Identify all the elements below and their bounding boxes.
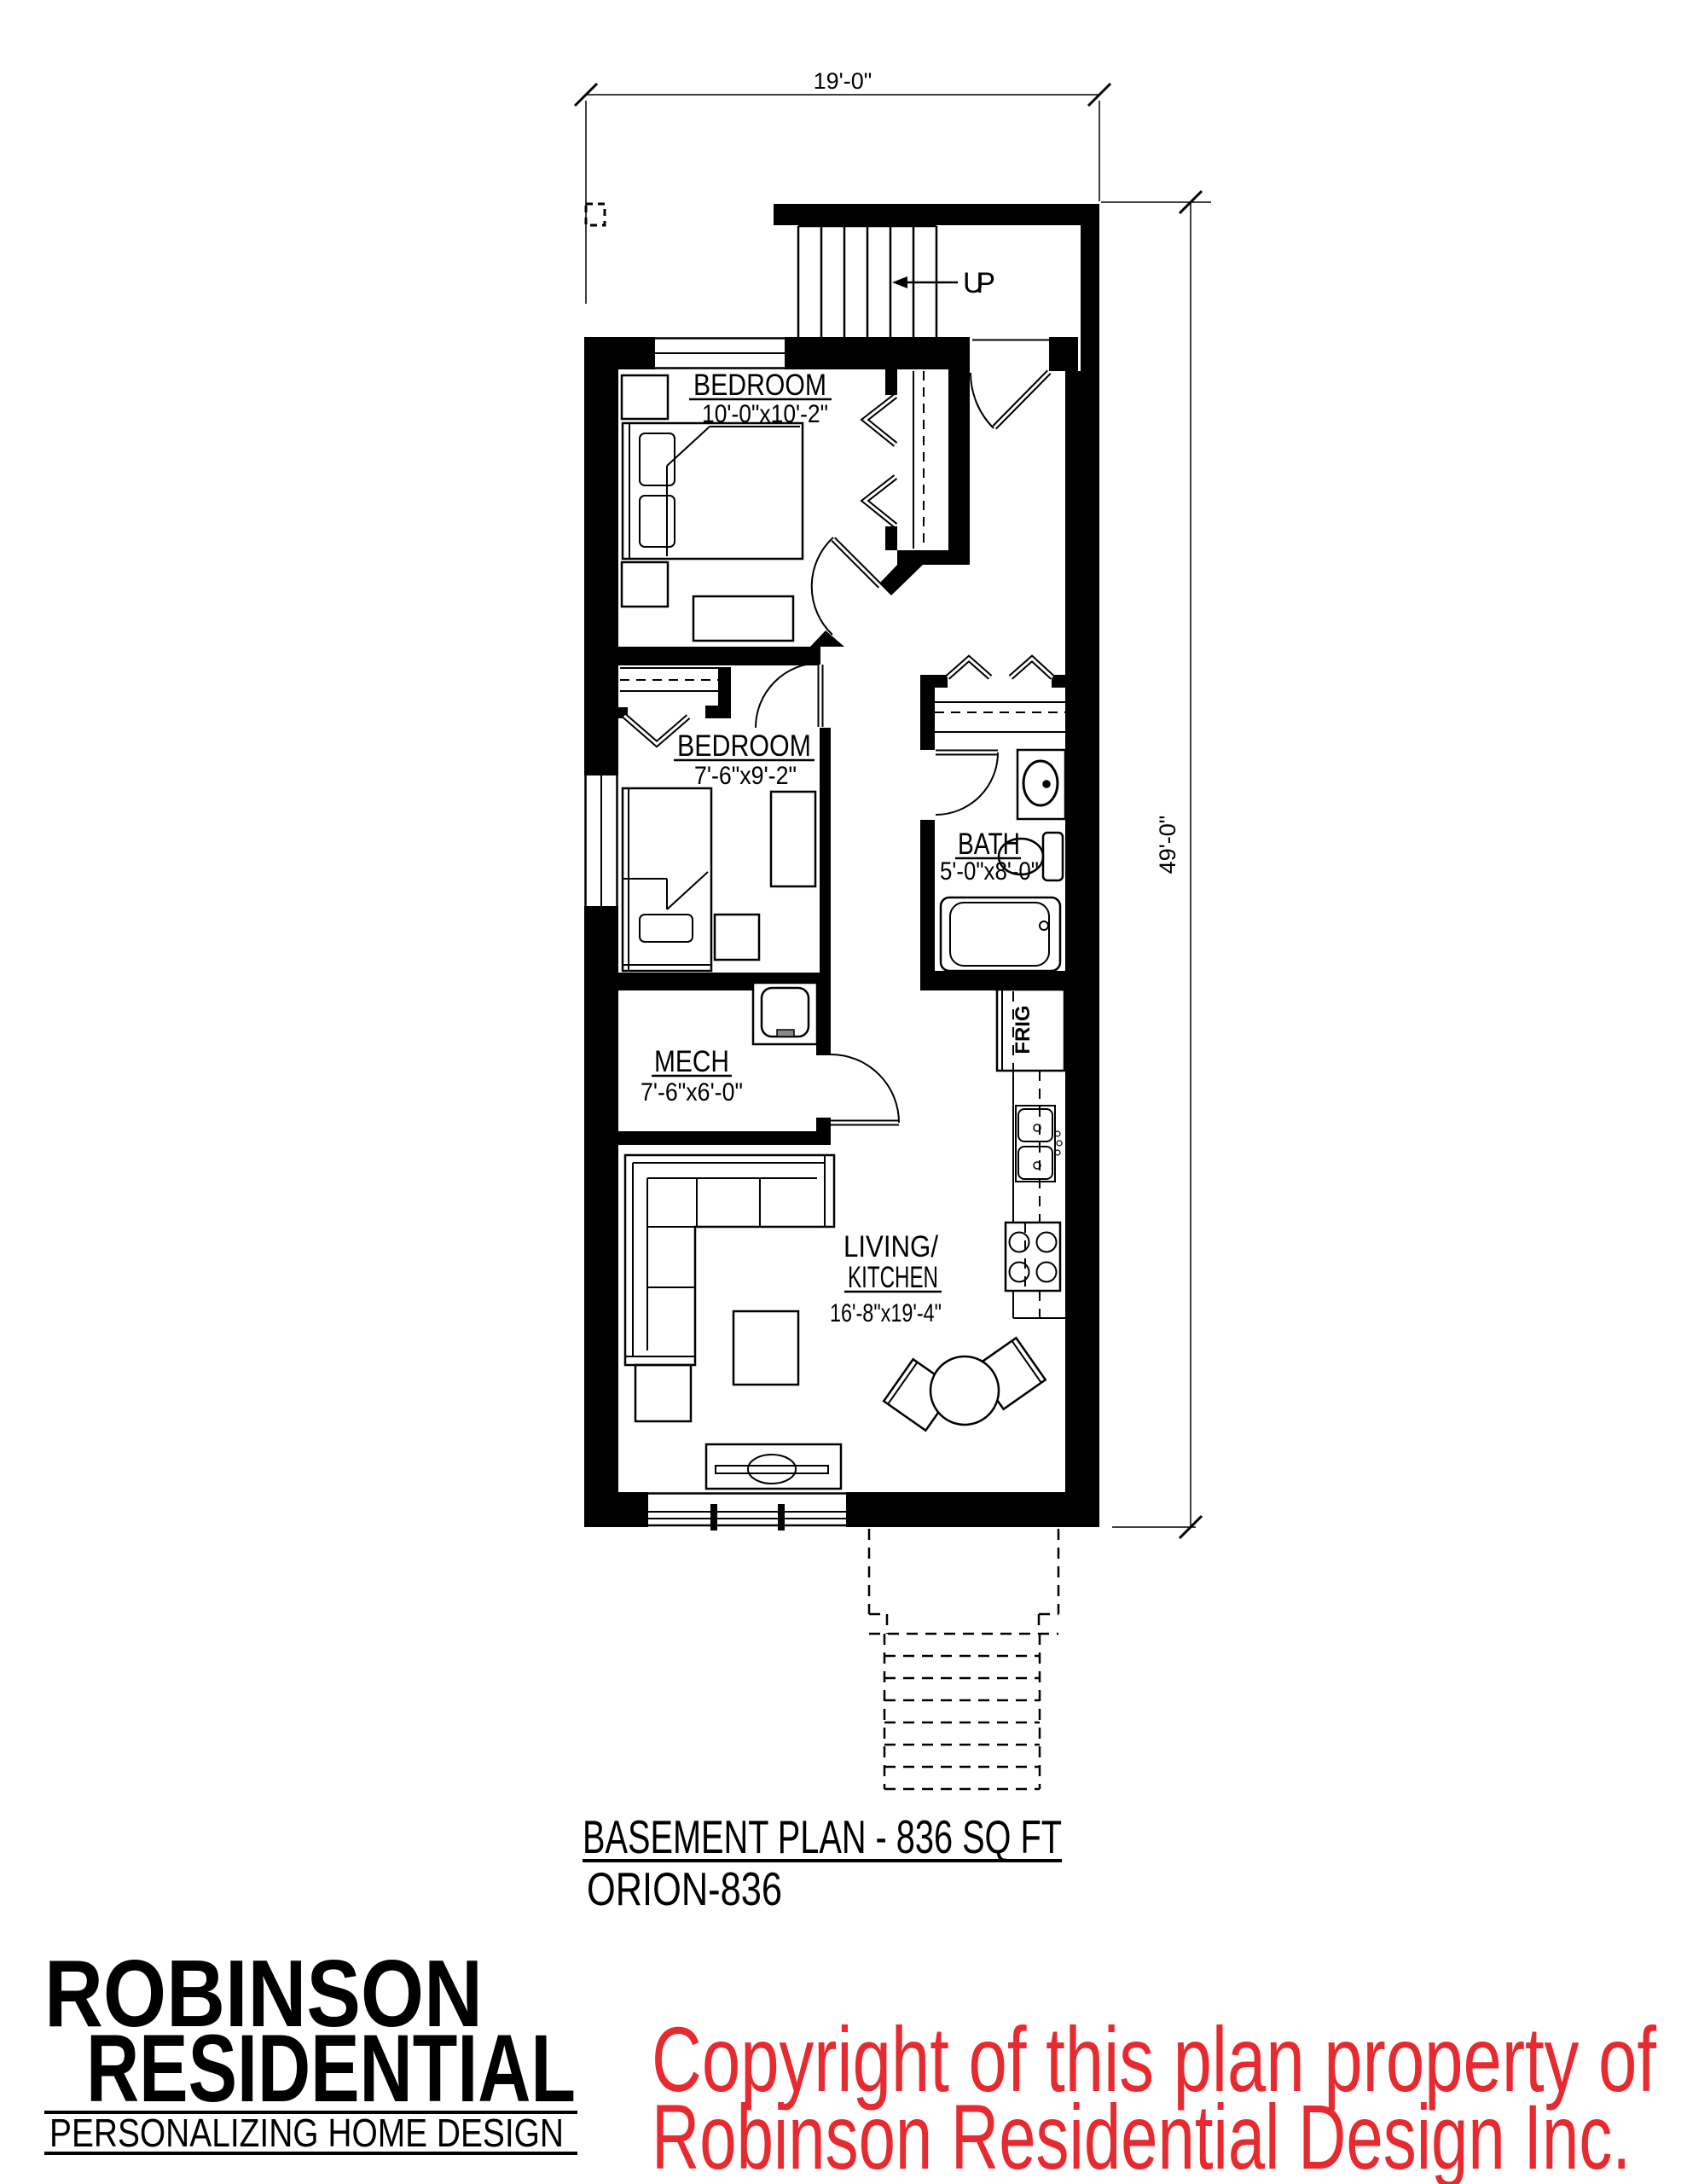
svg-text:KITCHEN: KITCHEN [848,1261,938,1294]
svg-text:BEDROOM: BEDROOM [677,729,811,763]
svg-text:5'-0"x8'-0": 5'-0"x8'-0" [940,857,1039,886]
svg-text:7'-6"x9'-2": 7'-6"x9'-2" [694,762,797,790]
svg-text:19'-0": 19'-0" [814,68,872,94]
svg-text:BATH: BATH [958,828,1020,861]
svg-text:UP: UP [963,267,995,299]
svg-text:PERSONALIZING HOME DESIGN: PERSONALIZING HOME DESIGN [49,2111,564,2155]
svg-text:FRIG: FRIG [1012,1005,1035,1054]
svg-text:ORION-836: ORION-836 [587,1862,782,1915]
svg-text:BEDROOM: BEDROOM [693,369,826,402]
svg-text:LIVING/: LIVING/ [843,1230,938,1263]
svg-text:RESIDENTIAL: RESIDENTIAL [86,2015,576,2122]
svg-text:16'-8"x19'-4": 16'-8"x19'-4" [830,1299,942,1327]
svg-text:Robinson Residential Design In: Robinson Residential Design Inc. [652,2085,1631,2184]
svg-text:49'-0": 49'-0" [1155,816,1180,874]
svg-text:7'-6"x6'-0": 7'-6"x6'-0" [641,1078,743,1107]
svg-text:BASEMENT PLAN - 836 SQ FT: BASEMENT PLAN - 836 SQ FT [583,1810,1062,1863]
svg-text:MECH: MECH [654,1045,729,1078]
svg-text:10'-0"x10'-2": 10'-0"x10'-2" [702,400,828,428]
